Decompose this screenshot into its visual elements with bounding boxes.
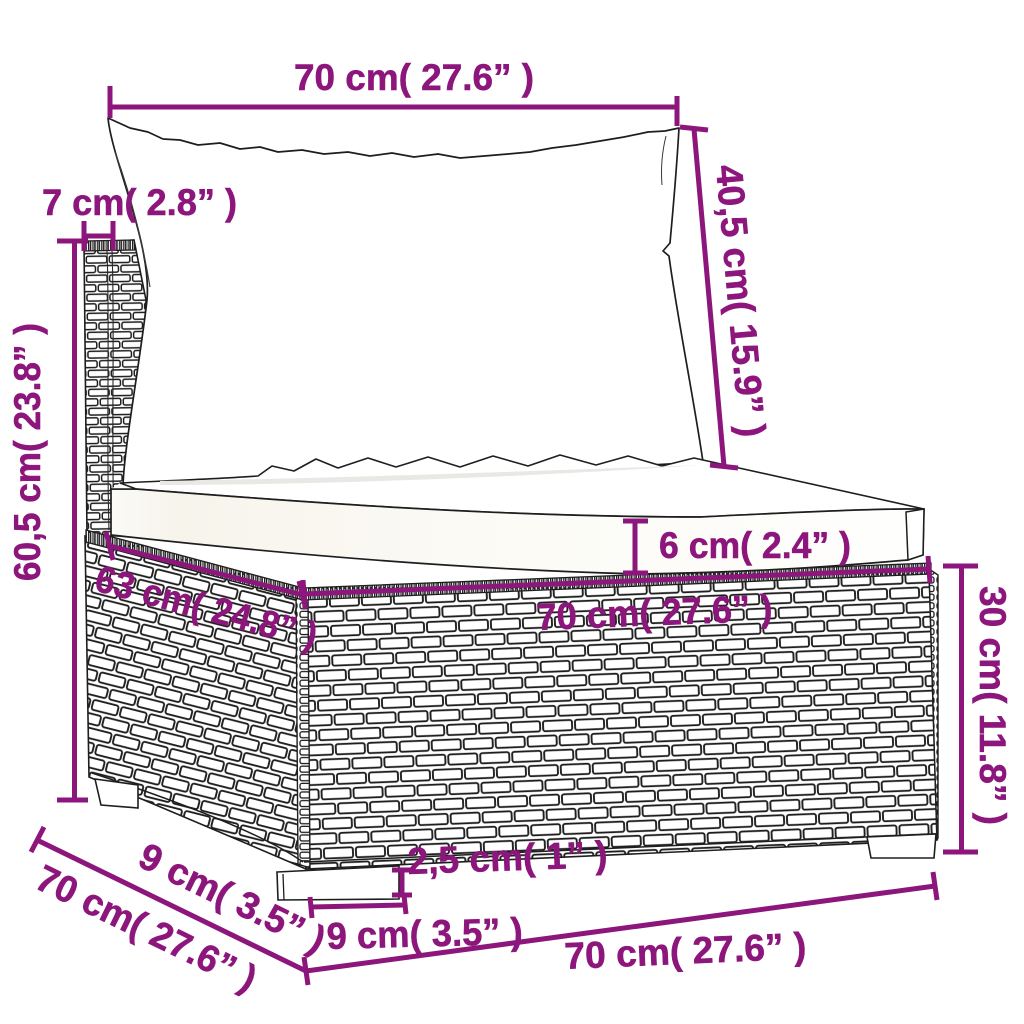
svg-text:2,5 cm( 1” ): 2,5 cm( 1” ) bbox=[407, 833, 608, 882]
svg-text:9 cm( 3.5” ): 9 cm( 3.5” ) bbox=[326, 910, 523, 957]
svg-text:6 cm( 2.4” ): 6 cm( 2.4” ) bbox=[659, 524, 851, 566]
svg-text:7 cm( 2.8” ): 7 cm( 2.8” ) bbox=[42, 181, 237, 223]
svg-text:70 cm( 27.6” ): 70 cm( 27.6” ) bbox=[294, 56, 534, 98]
svg-text:60,5 cm( 23.8” ): 60,5 cm( 23.8” ) bbox=[6, 323, 48, 581]
svg-text:30 cm( 11.8” ): 30 cm( 11.8” ) bbox=[972, 586, 1014, 825]
